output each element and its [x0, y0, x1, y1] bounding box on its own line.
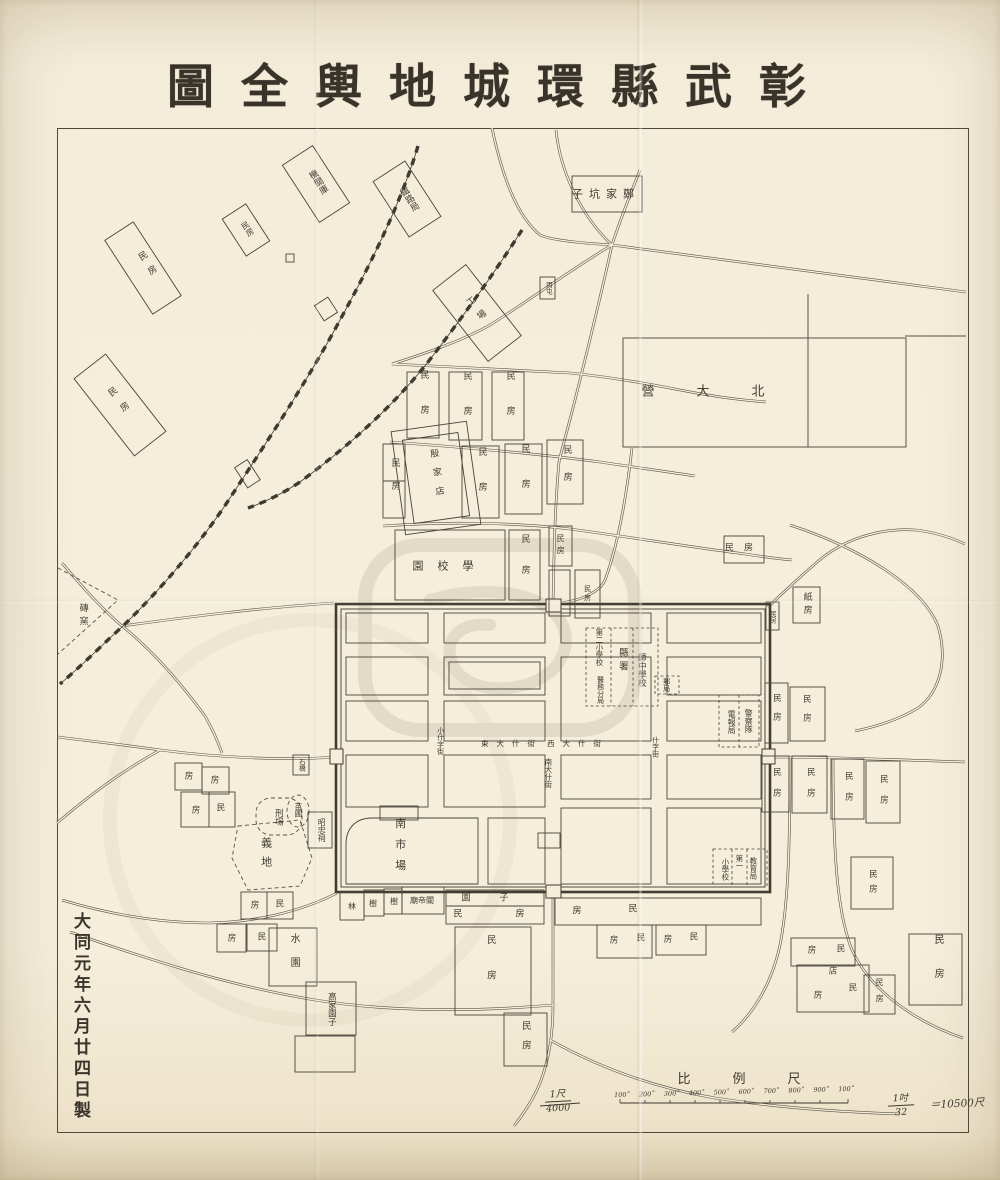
scale-tick-label: 200˚	[639, 1090, 655, 1098]
scale-tick-label: 500˚	[714, 1088, 730, 1096]
scale-tick-label: 100˚	[614, 1091, 630, 1099]
scale-tick-label: 600˚	[739, 1087, 755, 1095]
scale-fraction-right-num: 1吋	[887, 1089, 913, 1106]
camp-roads	[808, 294, 966, 338]
date-colophon: 大同元年六月廿四日製	[68, 912, 93, 1122]
scale-heading: 比例尺	[624, 1068, 854, 1087]
scale-tick-label: 400˚	[689, 1089, 705, 1097]
scale-fraction-left: 1尺 4000	[544, 1085, 571, 1114]
institution-boxes	[586, 628, 767, 887]
map-title: 圖全輿地城環縣武彰	[0, 48, 1000, 117]
scale-tick-label: 300˚	[664, 1089, 680, 1097]
map-sheet: 圖全輿地城環縣武彰 大同元年六月廿四日製	[0, 0, 1000, 1180]
scale-fraction-right-den: 32	[888, 1105, 914, 1118]
scale-tick-label: 900˚	[813, 1086, 829, 1094]
scale-tick-label: 100˚	[838, 1085, 854, 1093]
scale-tick-label: 800˚	[788, 1086, 804, 1094]
scale-bar	[540, 1099, 848, 1106]
scale-fraction-left-den: 4000	[545, 1101, 571, 1114]
scale-fraction-right: 1吋 32	[887, 1089, 914, 1118]
scale-tick-label: 700˚	[763, 1087, 779, 1095]
map-drawing	[0, 0, 1000, 1180]
scale-equals: ＝10500尺	[930, 1095, 985, 1113]
scale-fraction-left-num: 1尺	[544, 1085, 570, 1102]
